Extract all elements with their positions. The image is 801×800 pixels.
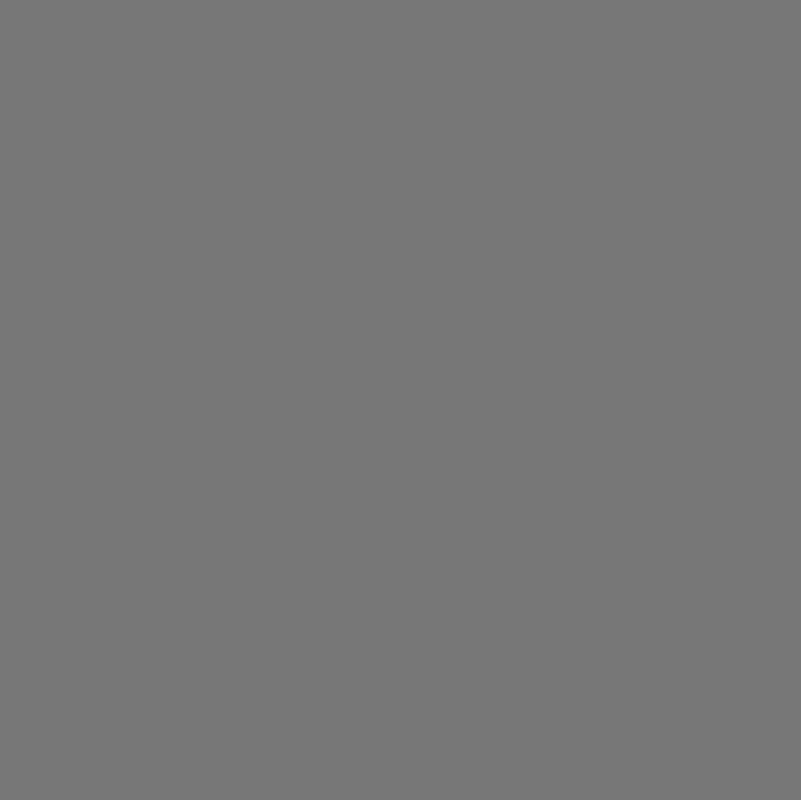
aerial-map bbox=[0, 0, 801, 800]
satellite-canvas bbox=[0, 0, 801, 800]
